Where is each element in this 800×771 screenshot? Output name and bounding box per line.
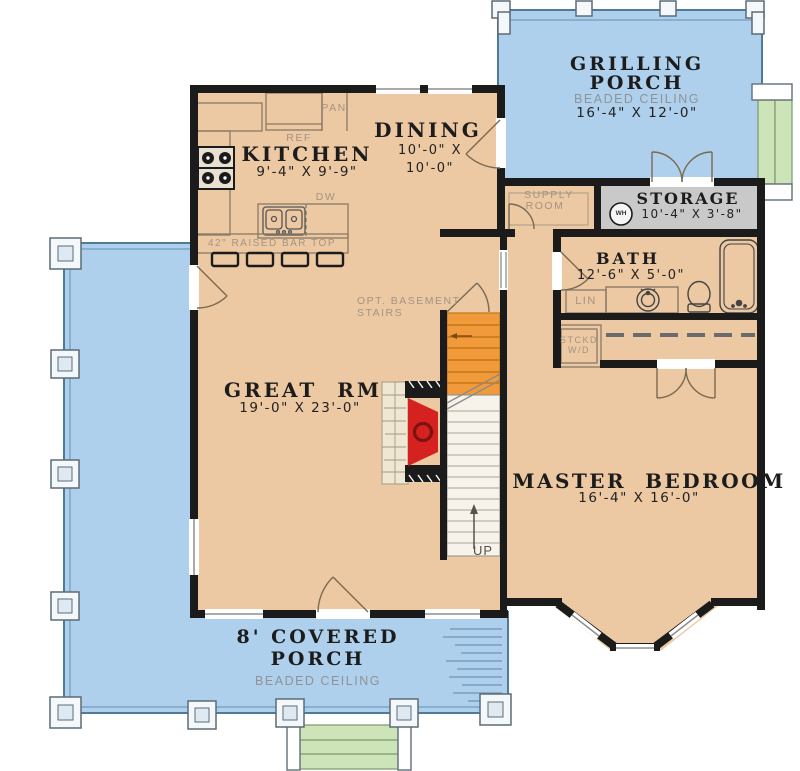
opt-basement-label-2: STAIRS — [357, 308, 403, 319]
kitchen-label: KITCHEN — [242, 144, 373, 164]
storage-label: STORAGE — [637, 191, 740, 207]
grilling-porch-ceiling-label: BEADED CEILING — [574, 93, 700, 106]
water-heater-label: WH — [616, 211, 627, 218]
pantry-label: PAN — [321, 103, 346, 114]
grilling-porch-label-2: PORCH — [590, 74, 685, 93]
dining-dims-2: 10'-0" — [406, 162, 454, 175]
supply-room-label-2: ROOM — [526, 201, 565, 212]
dining-dims-1: 10'-0" X — [398, 144, 462, 157]
great-room-dims: 19'-0" X 23'-0" — [239, 402, 360, 416]
dishwasher-label: DW — [316, 192, 337, 203]
stacked-wd-label-1: STCKD — [560, 336, 598, 345]
bath-label: BATH — [596, 251, 660, 267]
grilling-porch-dims: 16'-4" X 12'-0" — [576, 107, 697, 121]
bath-dims: 12'-6" X 5'-0" — [577, 269, 685, 282]
floor-plan: GRILLING PORCH BEADED CEILING 16'-4" X 1… — [0, 0, 800, 771]
range-cooktop-icon — [198, 147, 234, 189]
stairs-up-label: UP — [473, 544, 493, 557]
supply-room-label-1: SUPPLY — [524, 190, 574, 201]
covered-porch-label-2: PORCH — [271, 650, 366, 669]
linen-label: LIN — [575, 296, 597, 307]
basement-stairs — [447, 313, 500, 395]
kitchen-dims: 9'-4" X 9'-9" — [256, 166, 357, 180]
storage-dims: 10'-4" X 3'-8" — [641, 208, 742, 220]
master-bedroom-dims: 16'-4" X 16'-0" — [578, 492, 699, 506]
great-room-label: GREAT RM — [224, 380, 382, 400]
covered-porch-steps — [287, 721, 411, 770]
master-bedroom-label: MASTER BEDROOM — [512, 471, 785, 491]
covered-porch-label-1: 8' COVERED — [237, 628, 400, 647]
bar-top-label: 42" RAISED BAR TOP — [208, 239, 336, 249]
covered-porch-ceiling-label: BEADED CEILING — [255, 675, 381, 688]
stacked-wd-label-2: W/D — [568, 346, 590, 355]
main-stairs — [447, 374, 500, 556]
fireplace — [382, 381, 447, 484]
dining-label: DINING — [374, 120, 482, 140]
refrigerator-label: REF — [286, 133, 312, 144]
opt-basement-label-1: OPT. BASEMENT — [357, 296, 461, 307]
